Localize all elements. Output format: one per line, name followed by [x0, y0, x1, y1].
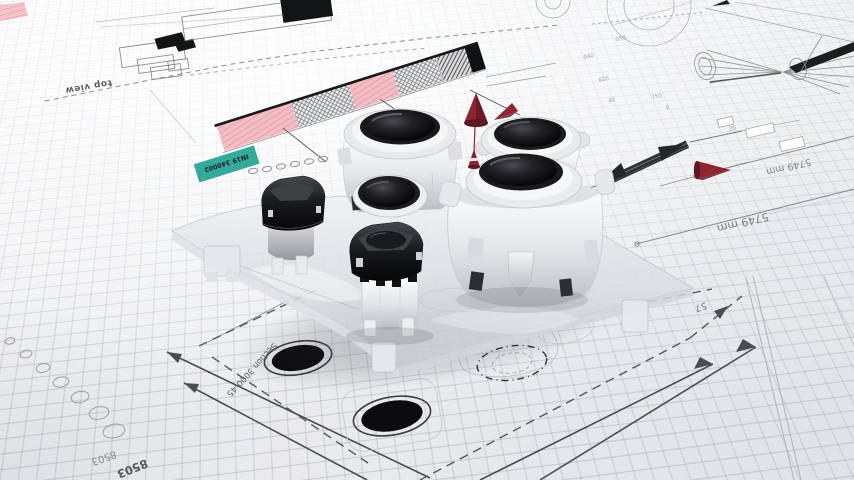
- svg-text:0: 0: [665, 105, 670, 112]
- tray-leg-c: [622, 300, 648, 332]
- segment-pink-a: [217, 103, 299, 151]
- tray-leg-b: [372, 342, 396, 372]
- cone-fan-diagram: [691, 36, 854, 94]
- dim-label-5749-upper: 5749 mm: [765, 156, 812, 177]
- plan-view-cluster: [116, 0, 339, 84]
- svg-text:750: 750: [651, 93, 663, 101]
- projector-main-right: [437, 154, 616, 314]
- dim-label-5749-lower: 5749 mm: [716, 210, 770, 235]
- svg-text:050: 050: [615, 35, 627, 43]
- locator-pin-d: [660, 161, 748, 186]
- svg-text:040: 040: [583, 53, 595, 61]
- top-right-corner-lines: [705, 0, 854, 42]
- locator-pin-c: [494, 103, 518, 120]
- hole-chain-top: [248, 156, 328, 175]
- tray-leg-a: [204, 246, 240, 282]
- projector-center-lens: [365, 111, 435, 141]
- svg-text:20: 20: [729, 125, 738, 132]
- top-circles-a: [536, 0, 570, 18]
- top-view-label: top view: [64, 77, 112, 95]
- plan-black-block-b: [280, 0, 333, 23]
- micro-annotations: 040 050 020 750 40 20 0: [583, 35, 737, 133]
- dim-label-8503-b: 8503: [115, 456, 150, 480]
- projector-top-right-lens: [497, 119, 561, 147]
- legend-extension-lines: [486, 63, 556, 86]
- svg-text:020: 020: [598, 76, 610, 84]
- plan-black-block-a: [154, 30, 196, 54]
- dim-label-8503-a: 8503: [90, 448, 118, 467]
- drawing-layer: top view: [0, 0, 854, 480]
- slab-arrow-right: [658, 144, 684, 161]
- corner-hatch-patch: [0, 2, 28, 21]
- blueprint-scene: top view: [0, 0, 854, 480]
- hole-chain-bottom-left: [4, 337, 126, 440]
- hole-label-57: 57: [693, 299, 708, 313]
- svg-text:40: 40: [608, 97, 617, 104]
- right-guide-lines: [746, 195, 854, 480]
- projector-main-right-lens: [483, 154, 557, 186]
- projector-lens-mid: [353, 175, 427, 217]
- corner-black-wedge: [712, 0, 730, 6]
